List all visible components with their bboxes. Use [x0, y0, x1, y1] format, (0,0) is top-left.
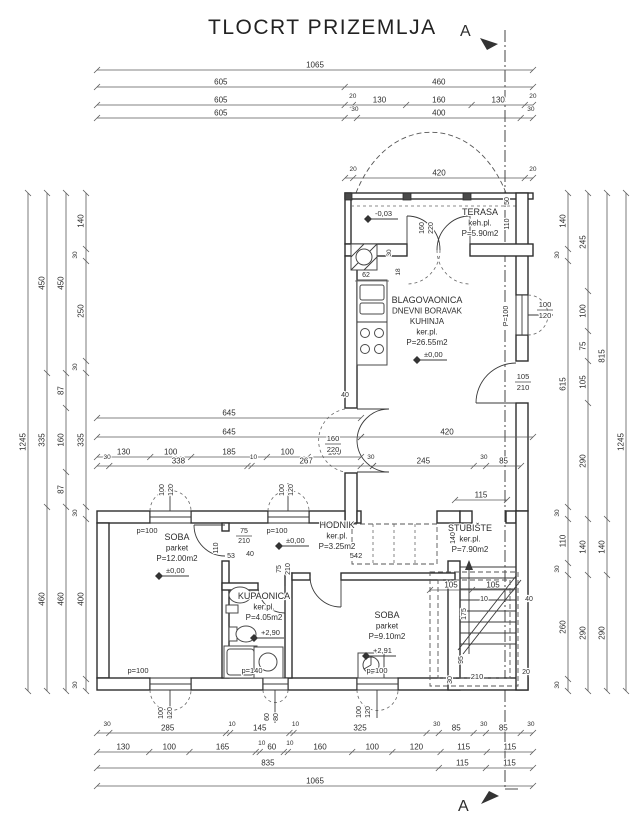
dim-label: 10	[228, 721, 236, 728]
annotation-label: 100	[158, 707, 165, 719]
dim-label: 835	[261, 759, 275, 768]
annotation-label: 53	[227, 553, 235, 560]
dim-label: 400	[432, 109, 446, 118]
wall	[341, 573, 455, 580]
dim-label: 450	[57, 276, 66, 290]
dim-label: 30	[554, 681, 561, 689]
stove-burner	[361, 345, 370, 354]
annotation-label: p=100	[366, 666, 387, 675]
dim-label: 130	[492, 96, 506, 105]
annotation-label: p=140	[241, 666, 262, 675]
room-label-living: KUHINJA	[410, 317, 445, 326]
dim-label: 115	[457, 743, 470, 752]
annotation-label: 220	[327, 445, 340, 454]
stair-treads	[460, 567, 516, 644]
dim-label: 338	[172, 457, 186, 466]
dim-label: 10	[258, 740, 266, 747]
level-value: -0,03	[375, 209, 392, 218]
level-value: +2,90	[261, 628, 280, 637]
dim-label: 30	[351, 106, 359, 113]
kitchen-sink	[360, 303, 384, 314]
dim-label: 290	[579, 454, 588, 468]
dim-label: 105	[486, 581, 500, 590]
room-label-living: P=26.55m2	[406, 338, 448, 347]
dim-label: 105	[444, 581, 458, 590]
section-marker-bottom: A	[458, 798, 469, 815]
dim-label: 115	[475, 491, 488, 500]
room-label-living: DNEVNI BORAVAK	[392, 307, 463, 316]
dim-label: 140	[579, 540, 588, 554]
dim-label: 285	[161, 724, 175, 733]
annotation-label: 210	[517, 383, 530, 392]
room-label-soba-2: parket	[376, 622, 399, 631]
wall	[191, 678, 263, 690]
annotation-label: 50	[504, 197, 511, 205]
room-label-soba-2: SOBA	[374, 610, 399, 620]
annotation-label: 75	[276, 565, 283, 573]
annotation-label: 140	[450, 532, 457, 544]
dim-label: 460	[57, 592, 66, 606]
roof-arc	[356, 132, 506, 193]
dim-label: 100	[163, 743, 177, 752]
dim-label: 140	[598, 540, 607, 554]
dim-label: 30	[72, 681, 79, 689]
section-arrow-bottom-icon	[481, 791, 499, 804]
level-markers-group: -0,03±0,00±0,00±0,00+2,90+2,91	[155, 209, 447, 660]
room-label-stubiste: ker.pl.	[459, 535, 480, 544]
room-label-soba-1: P=12.00m2	[156, 554, 198, 563]
dim-label: 30	[72, 363, 79, 371]
dim-label: 245	[417, 457, 431, 466]
wall	[345, 193, 351, 244]
dim-label: 140	[77, 214, 86, 228]
dim-label: 30	[72, 251, 79, 259]
dim-label: 420	[440, 428, 454, 437]
annotation-label: p=100	[127, 666, 148, 675]
dim-label: 160	[57, 433, 66, 447]
wall	[470, 244, 533, 256]
annotation-label: 100	[539, 300, 552, 309]
dim-label: 145	[253, 724, 267, 733]
room-label-stubiste: P=7.90m2	[452, 545, 489, 554]
wall	[288, 678, 357, 690]
room-label-soba-1: parket	[166, 544, 189, 553]
annotation-label: 30	[447, 676, 454, 684]
dim-label: 20	[529, 93, 537, 100]
annotation-label: 30	[386, 249, 393, 257]
dim-label: 325	[353, 724, 367, 733]
dim-label: 1065	[306, 777, 324, 786]
room-label-terasa: P=5.90m2	[462, 229, 499, 238]
annotation-label: 210	[238, 538, 250, 545]
dim-label: 140	[559, 214, 568, 228]
annotation-label: P=100	[503, 306, 510, 327]
dim-label: 105	[579, 375, 588, 389]
parapet-post	[403, 193, 411, 200]
dim-label: 160	[313, 743, 327, 752]
dim-label: 115	[504, 743, 517, 752]
annotation-label: p=100	[266, 526, 287, 535]
wall	[460, 511, 472, 523]
stove-burner	[375, 329, 384, 338]
dim-label: 87	[57, 386, 66, 395]
annotation-label: 160	[327, 434, 340, 443]
dim-label: 1065	[306, 61, 324, 70]
annotation-label: 100	[159, 484, 166, 496]
bath-shelf	[226, 605, 238, 613]
dim-label: 130	[116, 743, 130, 752]
room-label-terasa: TERASA	[462, 207, 498, 217]
dim-label: 160	[432, 96, 446, 105]
section-marker-top: A	[460, 23, 471, 40]
dim-label: 245	[579, 235, 588, 249]
annotation-label: 62	[362, 272, 370, 279]
window-swing-arc	[357, 690, 398, 710]
room-label-soba-2: P=9.10m2	[369, 632, 406, 641]
dim-label: 605	[214, 109, 228, 118]
annotation-label: 100	[279, 484, 286, 496]
annotation-label: 110	[213, 542, 220, 553]
section-line: A A	[458, 23, 518, 815]
door-swing-arc	[310, 576, 341, 607]
annotation-label: 120	[288, 484, 295, 496]
dim-label: 20	[349, 166, 357, 173]
dim-label: 1245	[19, 433, 28, 451]
dim-label: 130	[373, 96, 387, 105]
door-swing-arc-dashed	[407, 250, 440, 284]
dim-label: 30	[104, 721, 112, 728]
level-value: ±0,00	[166, 566, 185, 575]
wall	[97, 678, 150, 690]
room-label-hodnik: P=3.25m2	[319, 542, 356, 551]
dim-label: 30	[554, 565, 561, 573]
door-swing-arc-dashed	[437, 250, 470, 284]
dim-label: 460	[38, 592, 47, 606]
section-arrow-top-icon	[480, 38, 498, 50]
room-label-hodnik: HODNIK	[319, 520, 354, 530]
annotation-label: 175	[461, 608, 468, 620]
dim-label: 250	[77, 304, 86, 318]
dim-label: 100	[579, 304, 588, 318]
stair-break-line	[463, 580, 521, 654]
dim-label: 30	[480, 721, 488, 728]
stove-burner	[361, 329, 370, 338]
dim-label: 85	[499, 724, 508, 733]
wall	[97, 511, 150, 523]
dim-label: 100	[366, 743, 380, 752]
dim-label: 165	[216, 743, 230, 752]
level-value: +2,91	[373, 646, 392, 655]
annotation-label: 210	[471, 672, 484, 681]
wall	[191, 511, 268, 523]
wall	[437, 511, 460, 523]
dim-label: 460	[432, 78, 446, 87]
wall	[345, 256, 357, 408]
wall	[285, 573, 292, 678]
annotation-label: 220	[428, 222, 435, 234]
dim-label: 30	[367, 454, 375, 461]
dim-label: 20	[529, 166, 537, 173]
annotation-label: 100	[356, 706, 363, 718]
dim-label: 100	[281, 448, 295, 457]
level-value: ±0,00	[286, 536, 305, 545]
floor-plan-page: TLOCRT PRIZEMLJA A A	[0, 0, 643, 826]
window-swing-arc	[263, 690, 288, 702]
annotation-label: 120	[167, 707, 174, 719]
annotation-label: 60	[264, 713, 271, 721]
annotation-label: 105	[517, 372, 530, 381]
dim-label: 130	[117, 448, 131, 457]
chimney-flue	[356, 249, 372, 265]
annotation-label: 80	[273, 713, 280, 721]
dim-label: 290	[579, 626, 588, 640]
dim-label: 10	[250, 454, 258, 461]
room-label-kupaonica: KUPAONICA	[238, 591, 290, 601]
parapet-post	[345, 193, 352, 200]
dim-label: 615	[559, 377, 568, 391]
floor-plan-svg: A A	[0, 0, 643, 826]
dim-label: 30	[480, 454, 488, 461]
dim-label: 30	[72, 509, 79, 517]
annotation-label: 120	[168, 484, 175, 496]
free-labels-group: 16022050110100120P=100105210403018621602…	[127, 197, 551, 721]
dim-label: 10	[292, 721, 300, 728]
wall	[97, 523, 109, 678]
annotation-label: 160	[419, 222, 426, 234]
dim-label: 30	[554, 509, 561, 517]
annotation-label: 120	[365, 706, 372, 718]
dim-label: 115	[456, 759, 469, 768]
dim-label: 260	[559, 620, 568, 634]
dim-label: 290	[598, 626, 607, 640]
room-label-soba-1: SOBA	[164, 532, 189, 542]
dim-label: 30	[104, 454, 112, 461]
dim-label: 30	[527, 106, 535, 113]
dim-label: 120	[410, 743, 424, 752]
dim-label: 30	[433, 721, 441, 728]
dim-label: 115	[503, 759, 516, 768]
annotation-label: 120	[539, 311, 552, 320]
dim-label: 335	[77, 433, 86, 447]
dim-label: 30	[527, 721, 535, 728]
annotation-label: 542	[350, 551, 363, 560]
dim-label: 10	[286, 740, 294, 747]
annotation-label: 110	[504, 218, 511, 229]
door-swing-arc	[476, 363, 516, 403]
dim-label: 645	[222, 409, 236, 418]
dim-label: 85	[499, 457, 508, 466]
annotation-label: 40	[341, 392, 349, 399]
room-label-living: BLAGOVAONICA	[392, 295, 463, 305]
wall	[222, 523, 229, 531]
wall	[345, 473, 357, 523]
wardrobe-dashed	[352, 524, 437, 564]
dim-label: 335	[38, 433, 47, 447]
annotation-label: 95	[458, 656, 465, 664]
dim-label: 420	[432, 169, 446, 178]
dim-label: 815	[598, 349, 607, 363]
room-label-kupaonica: P=4.05m2	[246, 613, 283, 622]
room-label-hodnik: ker.pl.	[326, 532, 347, 541]
wall	[516, 403, 528, 511]
dim-label: 85	[452, 724, 461, 733]
level-value: ±0,00	[424, 350, 443, 359]
dim-label: 20	[349, 93, 357, 100]
door-swing-arc	[194, 525, 225, 556]
parapet-post	[463, 193, 471, 200]
stair-up-arrow-icon	[465, 560, 473, 570]
annotation-label: p=100	[136, 526, 157, 535]
dim-label: 87	[57, 484, 66, 493]
dim-label: 605	[214, 78, 228, 87]
wall	[506, 511, 516, 523]
annotation-label: 40	[525, 596, 533, 603]
dim-label: 185	[222, 448, 236, 457]
stove-burner	[375, 345, 384, 354]
wall	[516, 335, 528, 361]
annotation-label: 40	[246, 551, 254, 558]
dim-label: 645	[222, 428, 236, 437]
kitchen-sink	[360, 285, 384, 300]
annotation-label: 75	[240, 528, 248, 535]
wall	[357, 511, 361, 523]
dim-label: 605	[214, 96, 228, 105]
dim-label: 267	[299, 457, 313, 466]
dim-label: 400	[77, 592, 86, 606]
dim-label: 75	[579, 341, 588, 350]
dim-label: 30	[554, 251, 561, 259]
annotation-label: 10	[480, 596, 488, 603]
room-label-kupaonica: ker.pl.	[253, 603, 274, 612]
dim-label: 450	[38, 276, 47, 290]
room-label-stubiste: STUBIŠTE	[448, 523, 492, 533]
room-label-living: ker.pl.	[416, 328, 437, 337]
dim-label: 60	[267, 743, 276, 752]
annotation-label: 18	[395, 268, 402, 276]
dim-label: 100	[164, 448, 178, 457]
dim-label: 1245	[617, 433, 626, 451]
room-label-terasa: keh.pl.	[468, 219, 492, 228]
wall	[292, 573, 310, 580]
dim-label: 110	[559, 534, 568, 547]
annotation-label: 20	[522, 669, 530, 676]
annotation-label: 210	[285, 563, 292, 575]
